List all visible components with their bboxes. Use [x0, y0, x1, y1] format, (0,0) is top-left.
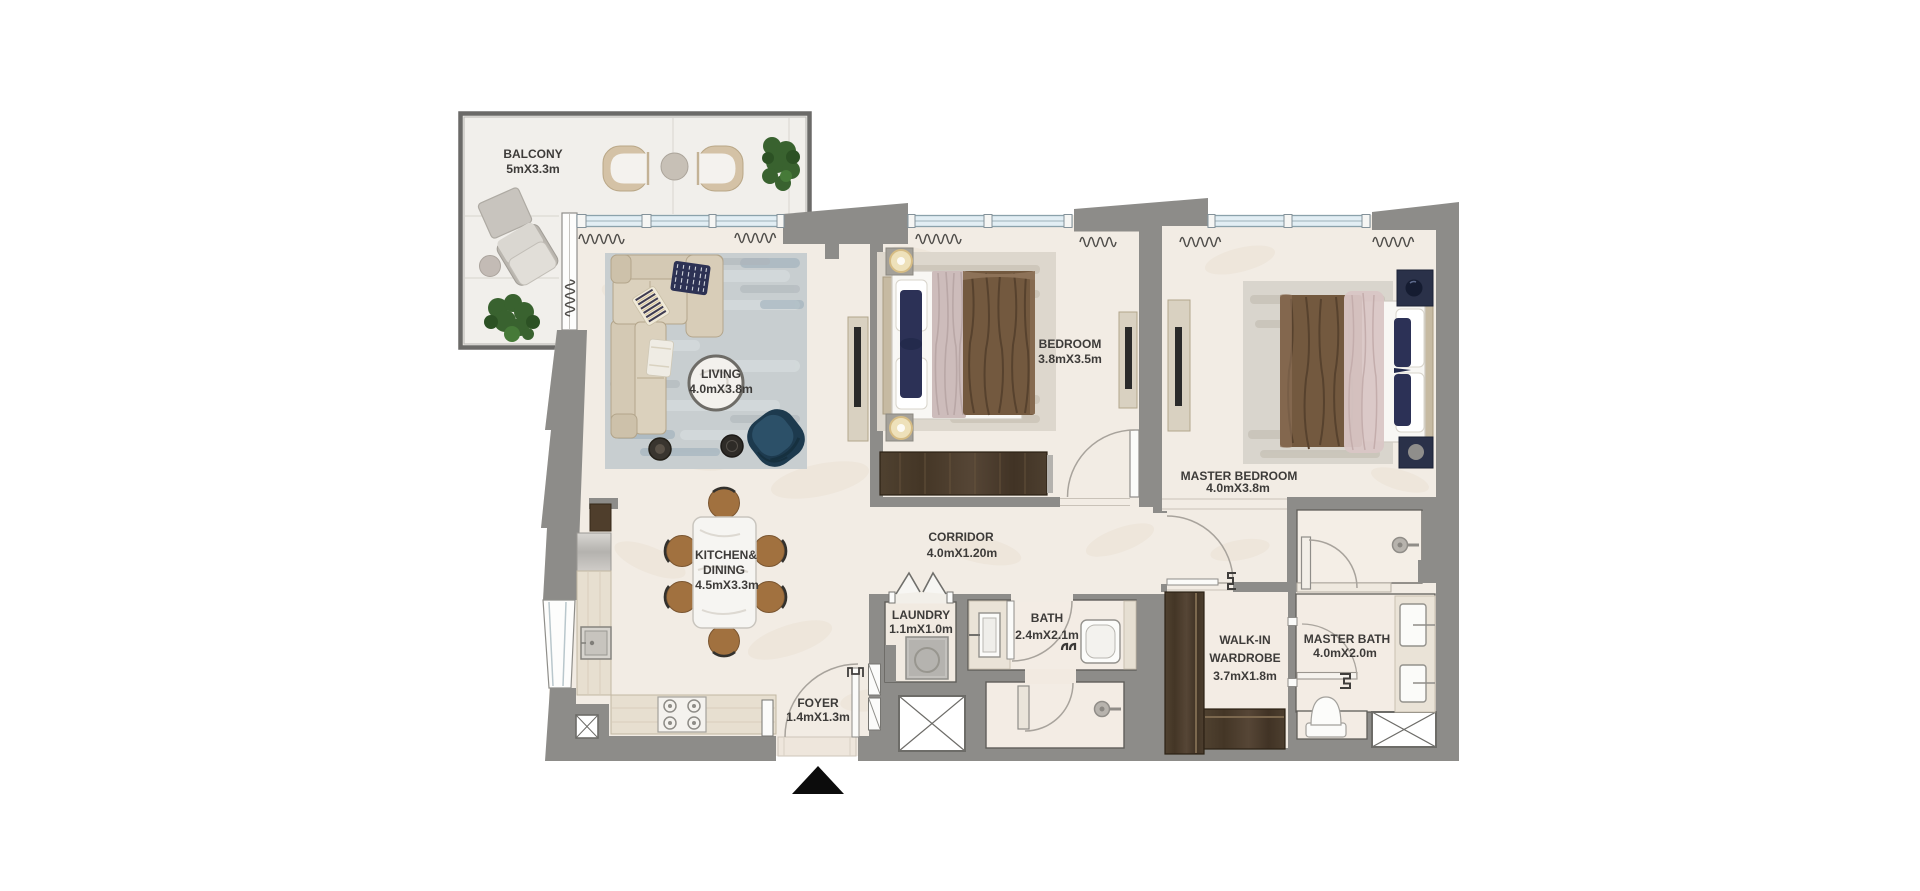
- svg-text:MASTER BATH: MASTER BATH: [1304, 632, 1390, 646]
- svg-text:1.4mX1.3m: 1.4mX1.3m: [786, 710, 850, 724]
- svg-text:LAUNDRY: LAUNDRY: [892, 608, 950, 622]
- svg-text:DINING: DINING: [703, 563, 745, 577]
- svg-text:KITCHEN&: KITCHEN&: [695, 548, 757, 562]
- svg-text:LIVING: LIVING: [701, 367, 741, 381]
- svg-text:4.0mX2.0m: 4.0mX2.0m: [1313, 646, 1377, 660]
- svg-text:WALK-IN: WALK-IN: [1219, 633, 1270, 647]
- svg-text:3.7mX1.8m: 3.7mX1.8m: [1213, 669, 1277, 683]
- svg-text:2.4mX2.1m: 2.4mX2.1m: [1015, 628, 1079, 642]
- svg-text:FOYER: FOYER: [797, 696, 839, 710]
- svg-text:1.1mX1.0m: 1.1mX1.0m: [889, 622, 953, 636]
- svg-text:BALCONY: BALCONY: [503, 147, 562, 161]
- svg-text:3.8mX3.5m: 3.8mX3.5m: [1038, 352, 1102, 366]
- svg-text:CORRIDOR: CORRIDOR: [928, 530, 994, 544]
- svg-text:BEDROOM: BEDROOM: [1039, 337, 1102, 351]
- svg-text:BATH: BATH: [1031, 611, 1063, 625]
- svg-text:WARDROBE: WARDROBE: [1209, 651, 1280, 665]
- svg-text:4.0mX1.20m: 4.0mX1.20m: [927, 546, 998, 560]
- svg-text:5mX3.3m: 5mX3.3m: [506, 162, 560, 176]
- svg-text:4.0mX3.8m: 4.0mX3.8m: [1206, 481, 1270, 495]
- svg-text:4.5mX3.3m: 4.5mX3.3m: [695, 578, 759, 592]
- svg-text:4.0mX3.8m: 4.0mX3.8m: [689, 382, 753, 396]
